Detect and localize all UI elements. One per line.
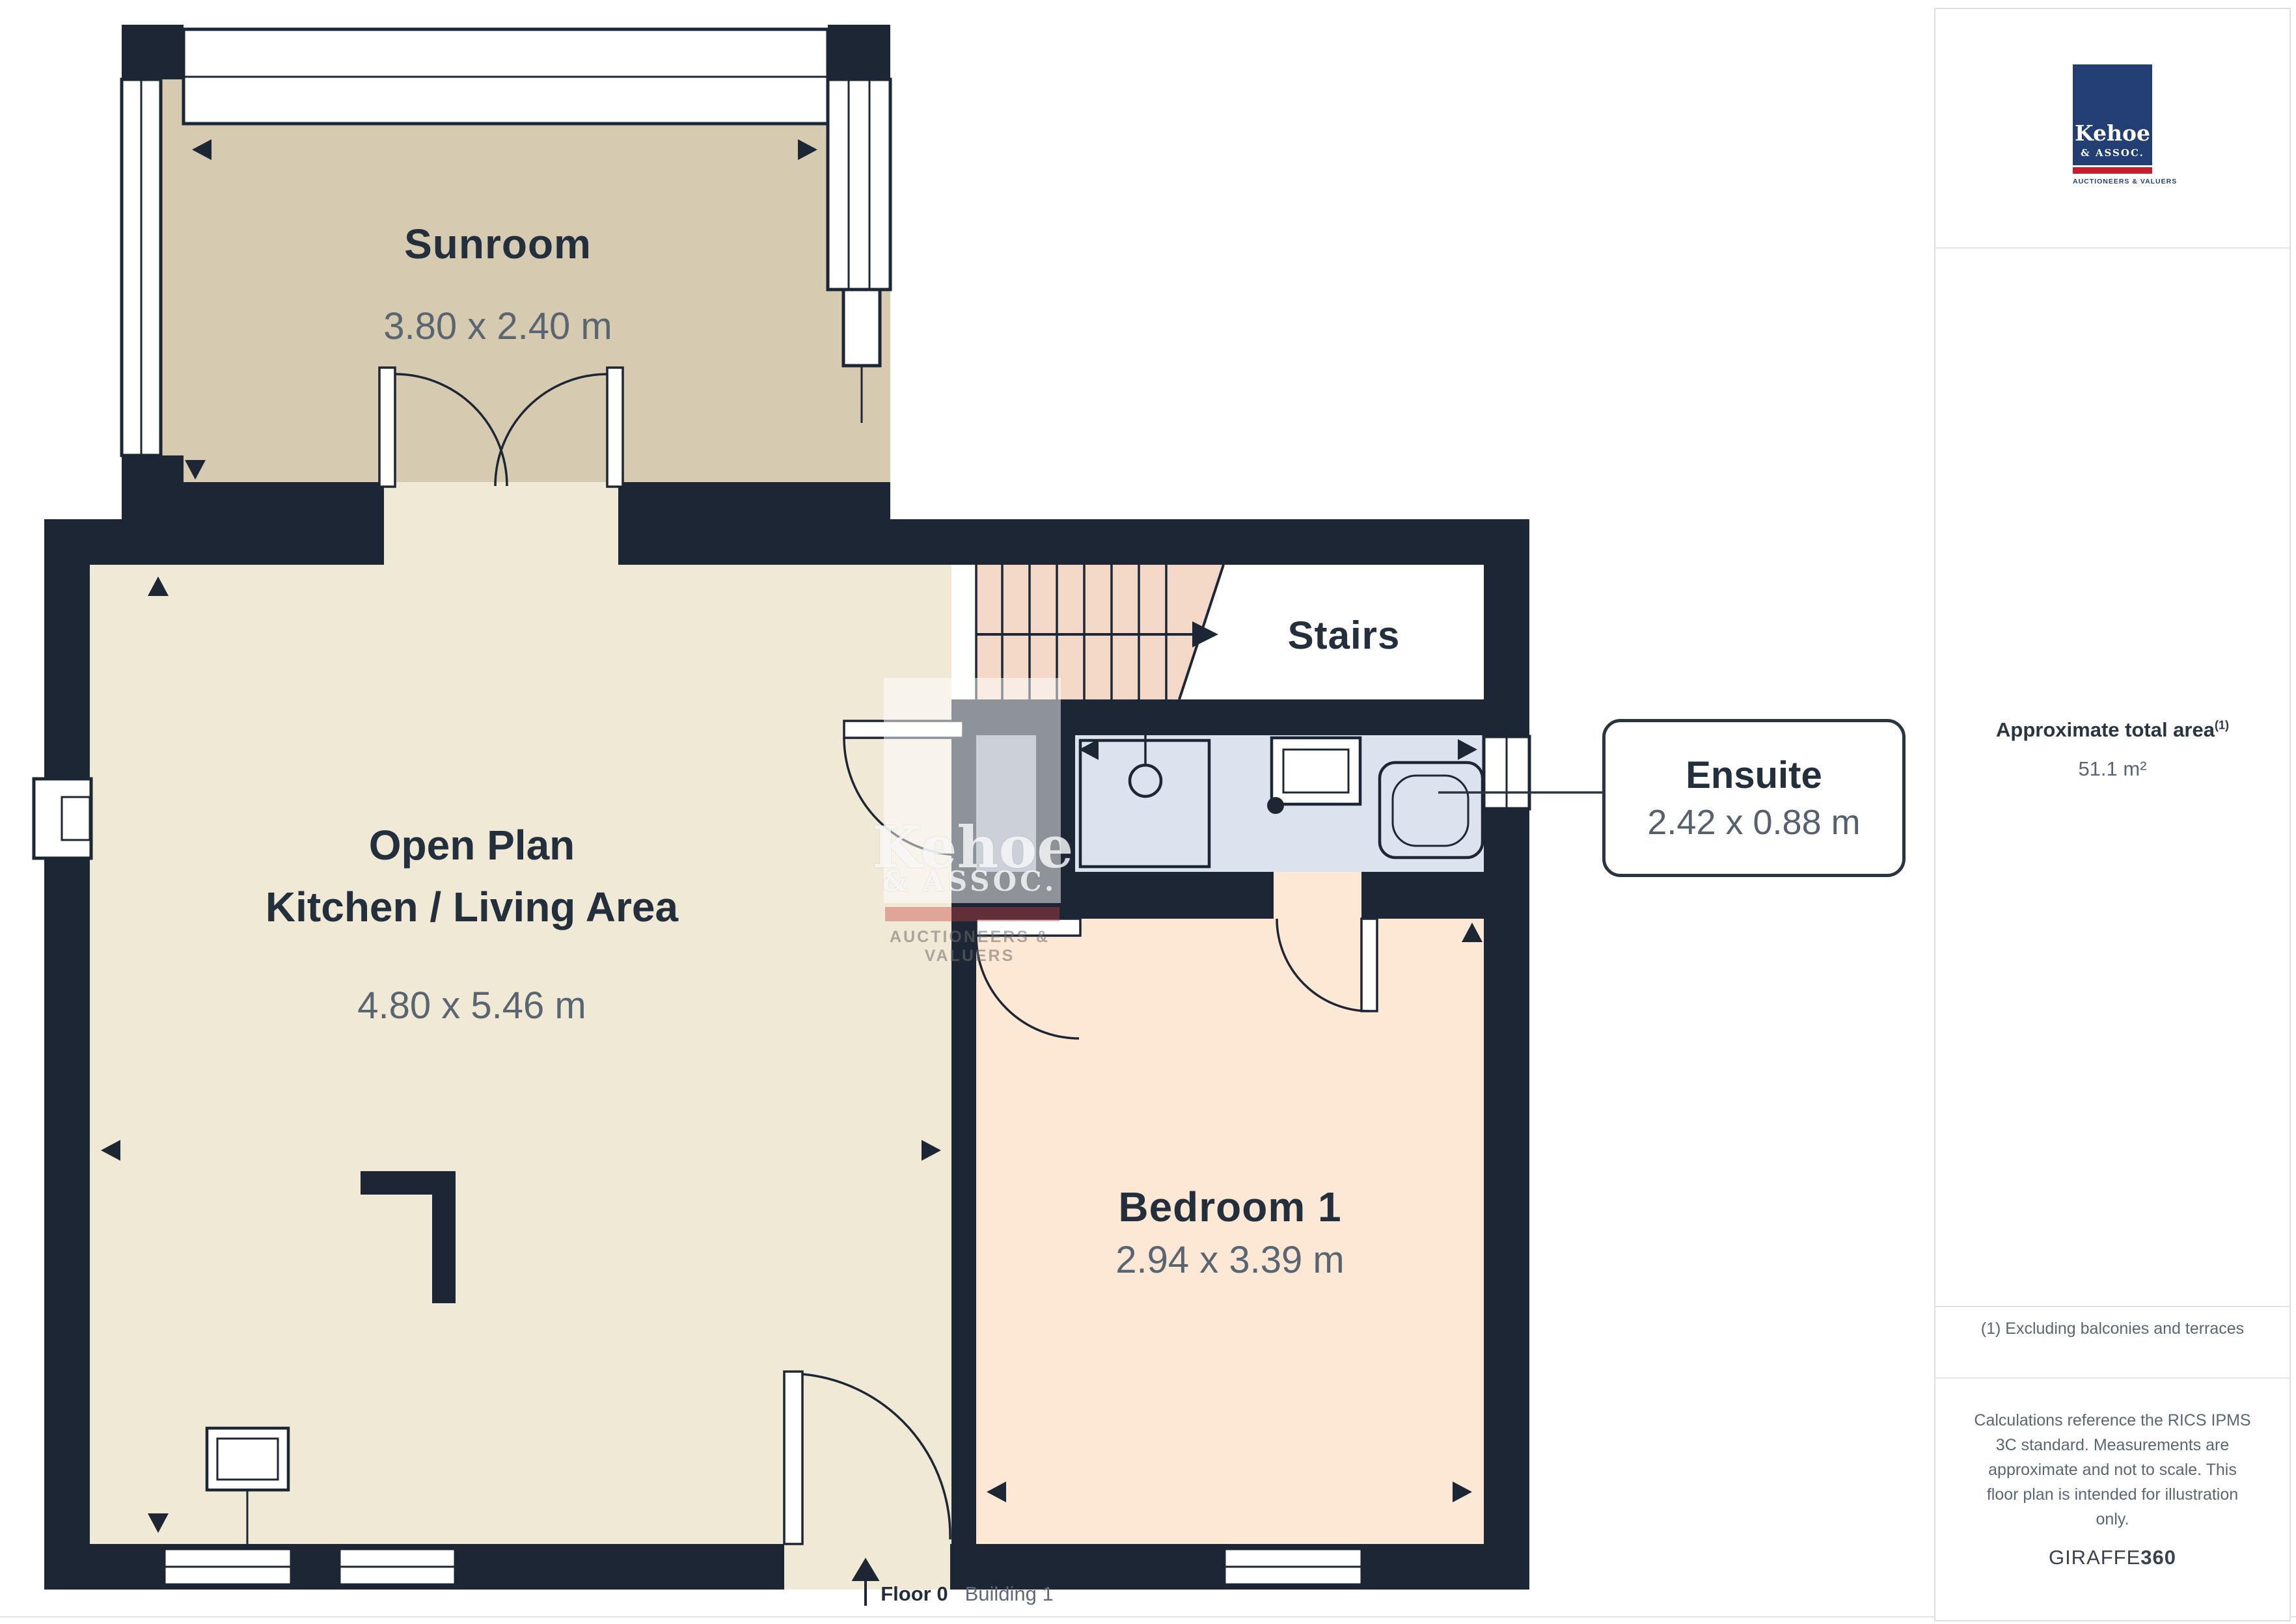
sidebar-divider-3: [1935, 1377, 2289, 1379]
agency-logo-tagline: AUCTIONEERS & VALUERS: [2073, 178, 2152, 185]
openplan-label-line1: Open Plan: [369, 815, 575, 876]
sidebar: Kehoe & ASSOC. AUCTIONEERS & VALUERS App…: [1934, 8, 2291, 1621]
brand-360: 360: [2140, 1546, 2176, 1569]
sunroom-door-opening: [384, 482, 618, 565]
floorplan-page: Sunroom 3.80 x 2.40 m Open Plan Kitchen …: [0, 0, 2296, 1624]
stairs-label: Stairs: [1288, 613, 1401, 658]
ensuite-callout: Ensuite 2.42 x 0.88 m: [1602, 719, 1906, 877]
sunroom-label: Sunroom: [404, 220, 592, 268]
ensuite-dims: 2.42 x 0.88 m: [1647, 802, 1860, 843]
sunroom-door-leaf-left: [379, 368, 395, 487]
openplan-dims: 4.80 x 5.46 m: [357, 984, 586, 1027]
sunroom-right-window-lower: [843, 290, 880, 366]
total-area-footnote-ref: (1): [2215, 719, 2229, 732]
sidebar-divider-2: [1935, 1306, 2289, 1307]
wall-openplan-bedroom: [951, 699, 976, 1544]
wall-bedroom-top: [976, 872, 1484, 919]
total-area-value: 51.1 m²: [1935, 757, 2289, 781]
brand-giraffe: GIRAFFE: [2049, 1546, 2140, 1569]
total-area-label-text: Approximate total area: [1996, 718, 2215, 741]
understairs-area: [976, 735, 1036, 872]
disclaimer-text: Calculations reference the RICS IPMS 3C …: [1971, 1408, 2254, 1532]
agency-logo-box: Kehoe & ASSOC.: [2073, 64, 2152, 165]
openplan-label-line2: Kitchen / Living Area: [266, 876, 678, 938]
total-area-block: Approximate total area(1) 51.1 m²: [1935, 718, 2289, 781]
ensuite-door-opening: [1274, 872, 1361, 919]
area-footnote: (1) Excluding balconies and terraces: [1935, 1319, 2289, 1338]
hall-door-leaf: [844, 721, 963, 738]
wall-sunroom-topleft: [122, 25, 184, 79]
sink-icon: [1272, 738, 1360, 804]
wall-kitchen-l-horizontal: [361, 1171, 456, 1195]
wall-right: [1484, 519, 1529, 1590]
entry-door-leaf: [784, 1372, 802, 1544]
agency-logo-sub: & ASSOC.: [2081, 147, 2144, 159]
bedroom-door-leaf: [976, 919, 1080, 936]
giraffe360-brand: GIRAFFE360: [1935, 1546, 2289, 1569]
bedroom-floor: [976, 919, 1484, 1544]
total-area-label: Approximate total area(1): [1935, 718, 2289, 742]
open-plan-floor: [90, 565, 951, 1544]
agency-logo-red-bar: [2073, 167, 2152, 174]
floor-label: Floor 0Building 1: [881, 1582, 1054, 1606]
bedroom-label: Bedroom 1: [1118, 1183, 1341, 1231]
wall-ensuite-left: [1036, 735, 1075, 872]
agency-logo: Kehoe & ASSOC. AUCTIONEERS & VALUERS: [2073, 64, 2152, 185]
bedroom-dims: 2.94 x 3.39 m: [1115, 1238, 1344, 1282]
ensuite-label: Ensuite: [1686, 753, 1822, 797]
wall-kitchen-l-vertical: [432, 1195, 456, 1303]
sunroom-dims: 3.80 x 2.40 m: [383, 304, 612, 348]
door-hinge-dot-icon: [1267, 797, 1284, 814]
sidebar-divider-1: [1935, 247, 2289, 249]
wall-sunroom-topright: [828, 25, 890, 79]
sunroom-door-leaf-right: [607, 368, 623, 487]
agency-logo-name: Kehoe: [2075, 120, 2150, 146]
wall-under-stairs: [951, 699, 1484, 735]
wall-top: [44, 519, 1529, 565]
building-number: Building 1: [965, 1582, 1054, 1605]
sunroom-right-window: [828, 79, 890, 290]
ensuite-door-leaf: [1361, 919, 1377, 1011]
wall-left: [44, 519, 90, 1590]
floor-number: Floor 0: [881, 1582, 948, 1605]
